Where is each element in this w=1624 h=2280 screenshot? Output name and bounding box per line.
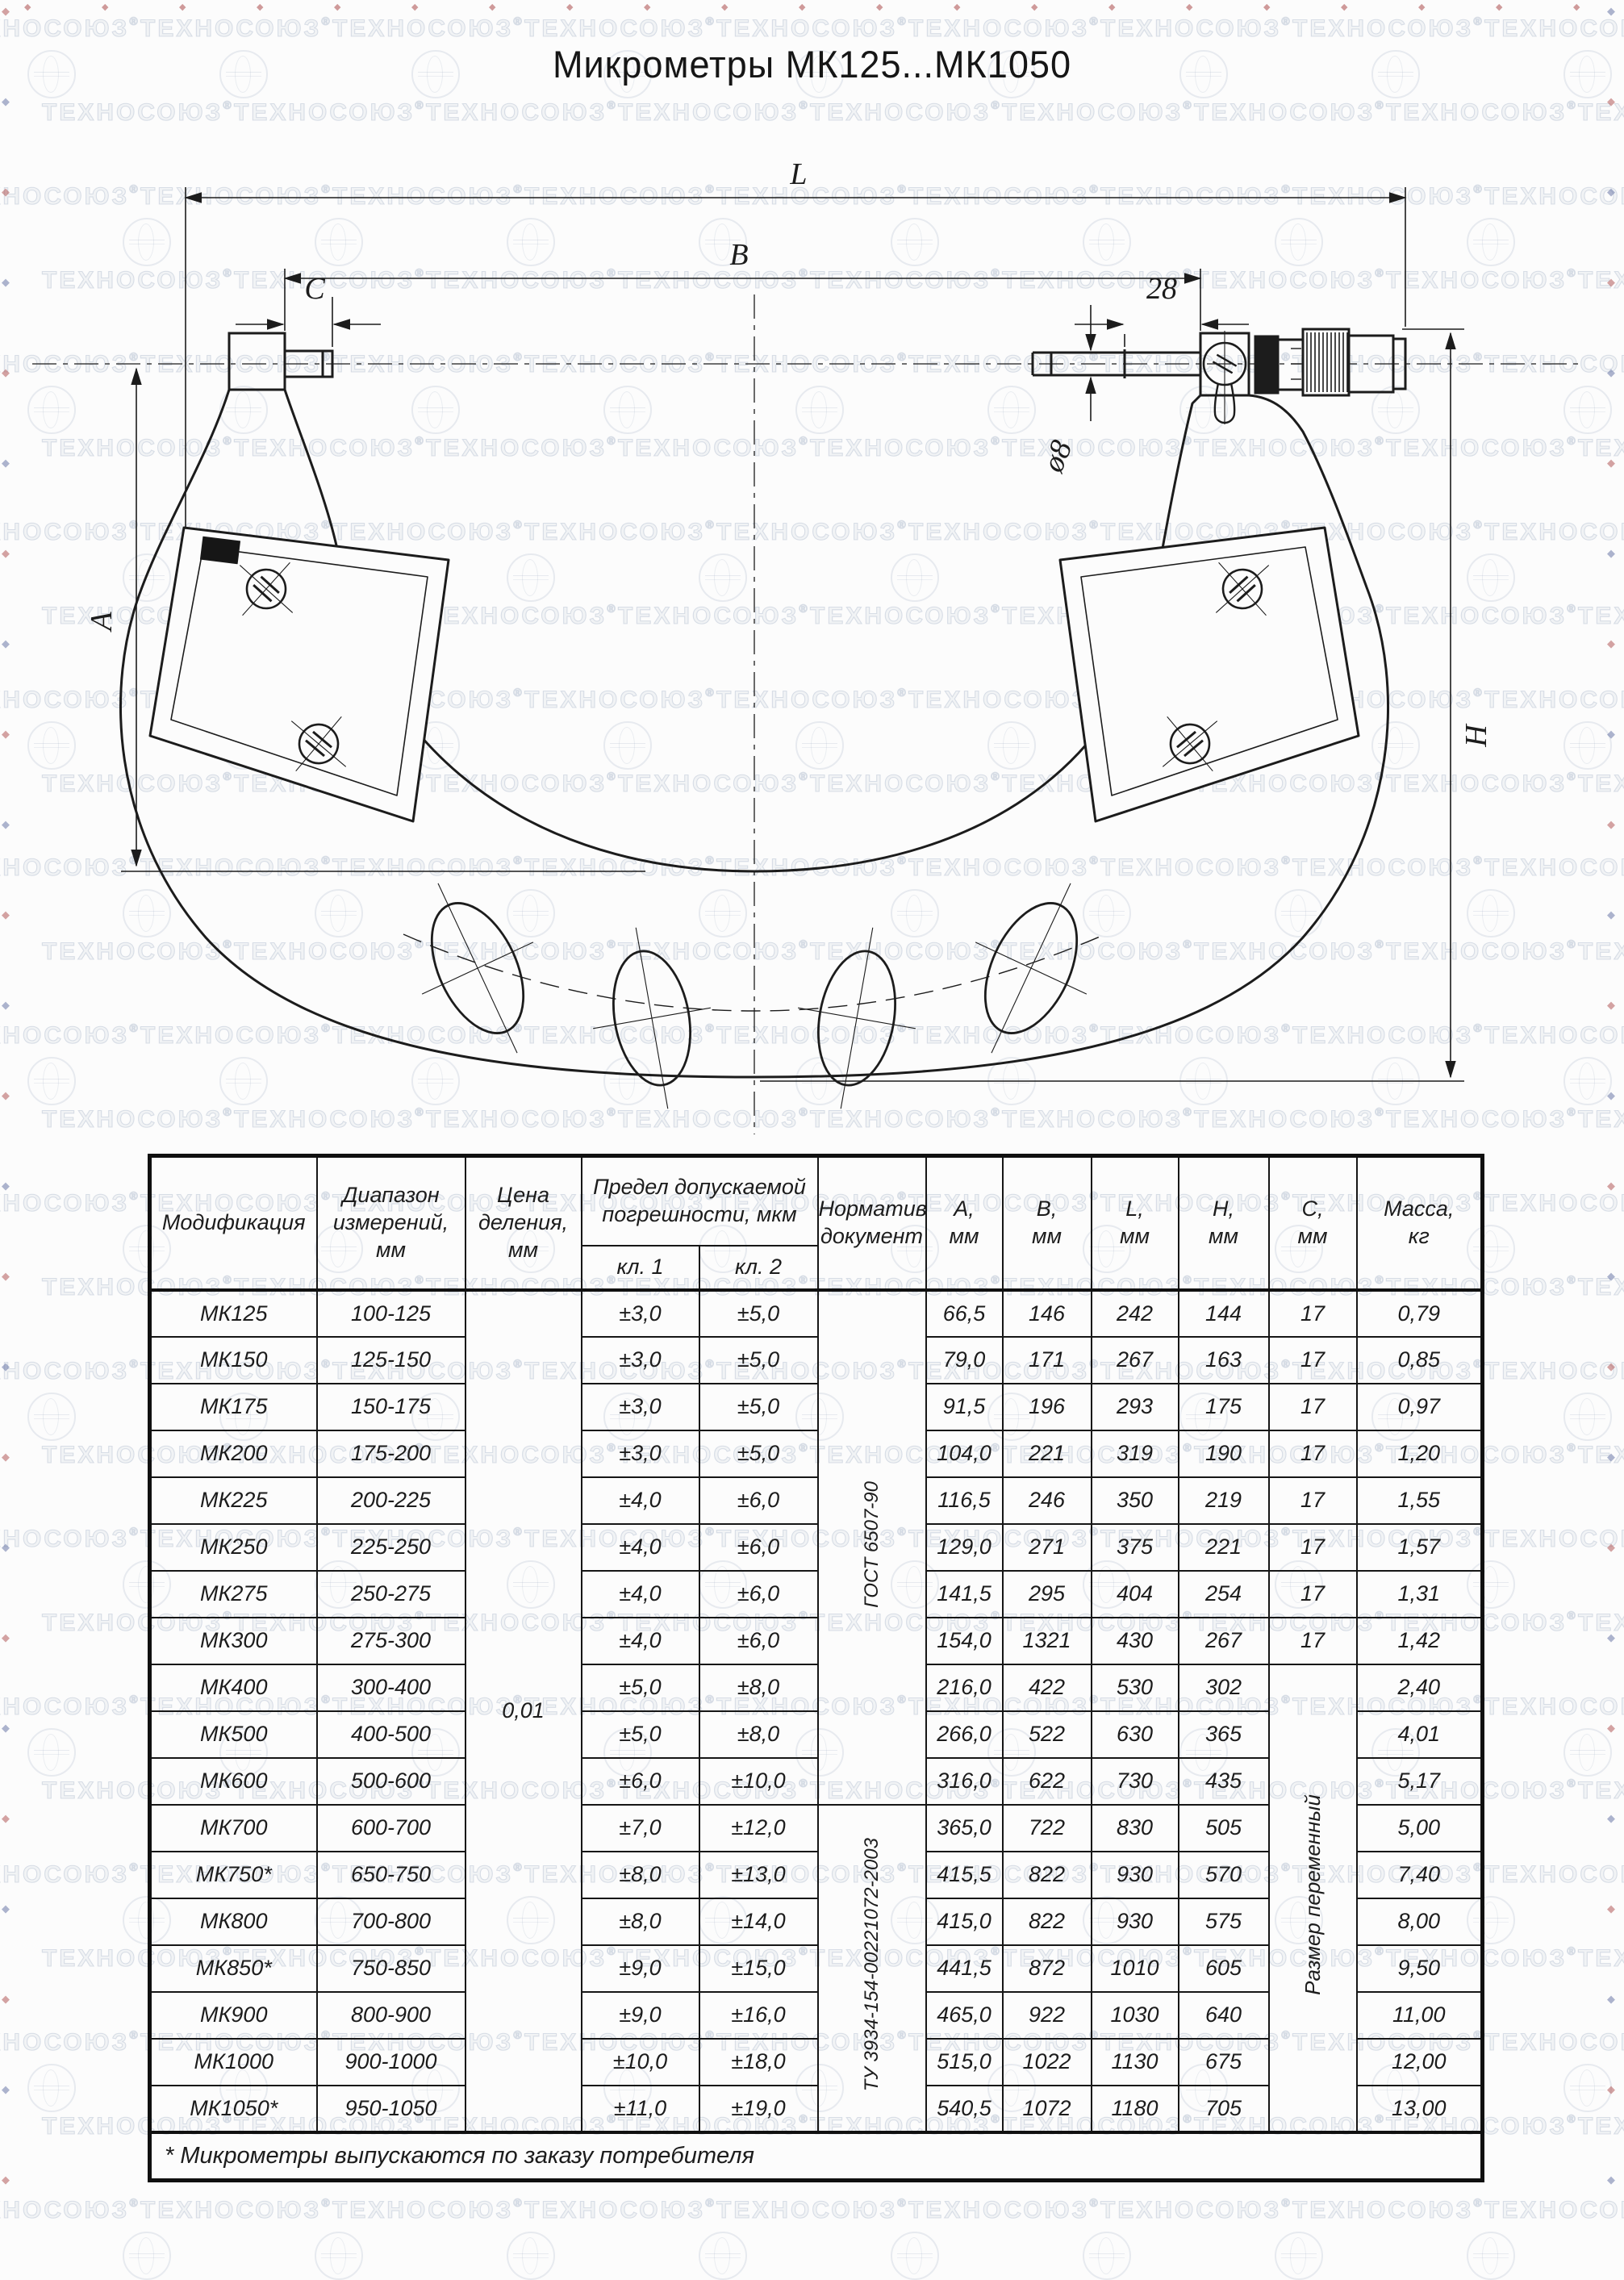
table-row: МК275250-275±4,0±6,0141,5295404254171,31: [150, 1571, 1483, 1618]
range-cell: 300-400: [317, 1664, 465, 1711]
adjusting-nut: [1255, 336, 1278, 393]
model-cell: МК225: [150, 1477, 317, 1524]
division-cell: 0,01: [465, 1290, 582, 2132]
c-cell: 17: [1269, 1477, 1357, 1524]
h-cell: 254: [1179, 1571, 1269, 1618]
dim-label-28: 28: [1146, 272, 1177, 306]
l-cell: 350: [1092, 1477, 1179, 1524]
header-mass: Масса, кг: [1357, 1156, 1483, 1291]
dim-label-d8: ø8: [1036, 436, 1079, 478]
class1-cell: ±3,0: [582, 1384, 699, 1430]
graduated-sleeve: [1278, 340, 1303, 390]
class1-cell: ±3,0: [582, 1290, 699, 1337]
range-cell: 250-275: [317, 1571, 465, 1618]
class2-cell: ±6,0: [699, 1571, 818, 1618]
mass-cell: 0,79: [1357, 1290, 1483, 1337]
h-cell: 575: [1179, 1898, 1269, 1945]
range-cell: 800-900: [317, 1992, 465, 2039]
l-cell: 1010: [1092, 1945, 1179, 1992]
l-cell: 830: [1092, 1805, 1179, 1852]
l-cell: 930: [1092, 1852, 1179, 1898]
l-cell: 1180: [1092, 2086, 1179, 2132]
b-cell: 822: [1003, 1852, 1092, 1898]
mass-cell: 1,31: [1357, 1571, 1483, 1618]
mass-cell: 2,40: [1357, 1664, 1483, 1711]
h-cell: 175: [1179, 1384, 1269, 1430]
mass-cell: 0,85: [1357, 1337, 1483, 1384]
class1-cell: ±11,0: [582, 2086, 699, 2132]
header-col-a: А, мм: [926, 1156, 1003, 1291]
class2-cell: ±6,0: [699, 1618, 818, 1664]
class2-cell: ±14,0: [699, 1898, 818, 1945]
c-cell: 17: [1269, 1290, 1357, 1337]
class2-cell: ±5,0: [699, 1384, 818, 1430]
table-row: МК125100-1250,01±3,0±5,0ГОСТ 6507-9066,5…: [150, 1290, 1483, 1337]
class2-cell: ±5,0: [699, 1290, 818, 1337]
mass-cell: 1,20: [1357, 1430, 1483, 1477]
class2-cell: ±8,0: [699, 1711, 818, 1758]
model-cell: МК500: [150, 1711, 317, 1758]
a-cell: 415,0: [926, 1898, 1003, 1945]
header-error: Предел допускаемой погрешности, мкм: [582, 1156, 818, 1246]
c-cell: 17: [1269, 1430, 1357, 1477]
header-doc: Нормативный документ: [818, 1156, 926, 1291]
table-row: МК225200-225±4,0±6,0116,5246350219171,55: [150, 1477, 1483, 1524]
class1-cell: ±5,0: [582, 1711, 699, 1758]
b-cell: 1072: [1003, 2086, 1092, 2132]
doc-gost: ГОСТ 6507-90: [862, 1481, 882, 1608]
division-value: 0,01: [466, 1697, 581, 1725]
class1-cell: ±3,0: [582, 1430, 699, 1477]
h-cell: 190: [1179, 1430, 1269, 1477]
class2-cell: ±5,0: [699, 1337, 818, 1384]
b-cell: 246: [1003, 1477, 1092, 1524]
l-cell: 404: [1092, 1571, 1179, 1618]
header-class2: кл. 2: [699, 1246, 818, 1290]
range-cell: 600-700: [317, 1805, 465, 1852]
b-cell: 522: [1003, 1711, 1092, 1758]
l-cell: 293: [1092, 1384, 1179, 1430]
class2-cell: ±6,0: [699, 1477, 818, 1524]
h-cell: 605: [1179, 1945, 1269, 1992]
class2-cell: ±6,0: [699, 1524, 818, 1571]
l-cell: 1130: [1092, 2039, 1179, 2086]
l-cell: 930: [1092, 1898, 1179, 1945]
table-row: МК250225-250±4,0±6,0129,0271375221171,57: [150, 1524, 1483, 1571]
model-cell: МК900: [150, 1992, 317, 2039]
a-cell: 415,5: [926, 1852, 1003, 1898]
b-cell: 622: [1003, 1758, 1092, 1805]
h-cell: 435: [1179, 1758, 1269, 1805]
c-variable: Размер переменный: [1302, 1794, 1323, 1995]
b-cell: 922: [1003, 1992, 1092, 2039]
doc-tu: ТУ 3934-154-00221072-2003: [862, 1838, 882, 2091]
h-cell: 144: [1179, 1290, 1269, 1337]
model-cell: МК275: [150, 1571, 317, 1618]
range-cell: 125-150: [317, 1337, 465, 1384]
model-cell: МК750*: [150, 1852, 317, 1898]
h-cell: 505: [1179, 1805, 1269, 1852]
dim-label-h: H: [1459, 723, 1493, 748]
page-title: Микрометры МК125...МК1050: [32, 42, 1591, 86]
b-cell: 1022: [1003, 2039, 1092, 2086]
b-cell: 422: [1003, 1664, 1092, 1711]
l-cell: 530: [1092, 1664, 1179, 1711]
knurled-thimble: [1303, 329, 1349, 395]
h-cell: 163: [1179, 1337, 1269, 1384]
b-cell: 722: [1003, 1805, 1092, 1852]
mass-cell: 13,00: [1357, 2086, 1483, 2132]
range-cell: 200-225: [317, 1477, 465, 1524]
class2-cell: ±15,0: [699, 1945, 818, 1992]
b-cell: 171: [1003, 1337, 1092, 1384]
a-cell: 91,5: [926, 1384, 1003, 1430]
header-col-h: Н, мм: [1179, 1156, 1269, 1291]
range-cell: 700-800: [317, 1898, 465, 1945]
h-cell: 675: [1179, 2039, 1269, 2086]
header-class1: кл. 1: [582, 1246, 699, 1290]
brand-plate: [200, 537, 240, 563]
model-cell: МК250: [150, 1524, 317, 1571]
class1-cell: ±6,0: [582, 1758, 699, 1805]
b-cell: 822: [1003, 1898, 1092, 1945]
model-cell: МК700: [150, 1805, 317, 1852]
mass-cell: 5,00: [1357, 1805, 1483, 1852]
h-cell: 221: [1179, 1524, 1269, 1571]
a-cell: 141,5: [926, 1571, 1003, 1618]
model-cell: МК300: [150, 1618, 317, 1664]
a-cell: 104,0: [926, 1430, 1003, 1477]
range-cell: 900-1000: [317, 2039, 465, 2086]
class1-cell: ±4,0: [582, 1524, 699, 1571]
b-cell: 1321: [1003, 1618, 1092, 1664]
mass-cell: 1,55: [1357, 1477, 1483, 1524]
b-cell: 295: [1003, 1571, 1092, 1618]
catalog-page: Микрометры МК125...МК1050: [0, 0, 1624, 2250]
class2-cell: ±8,0: [699, 1664, 818, 1711]
a-cell: 316,0: [926, 1758, 1003, 1805]
a-cell: 515,0: [926, 2039, 1003, 2086]
range-cell: 175-200: [317, 1430, 465, 1477]
mass-cell: 11,00: [1357, 1992, 1483, 2039]
class1-cell: ±7,0: [582, 1805, 699, 1852]
range-cell: 400-500: [317, 1711, 465, 1758]
b-cell: 872: [1003, 1945, 1092, 1992]
mass-cell: 0,97: [1357, 1384, 1483, 1430]
class1-cell: ±9,0: [582, 1945, 699, 1992]
dim-label-b: B: [729, 238, 748, 272]
a-cell: 66,5: [926, 1290, 1003, 1337]
mass-cell: 12,00: [1357, 2039, 1483, 2086]
table-row: МК175150-175±3,0±5,091,5196293175170,97: [150, 1384, 1483, 1430]
a-cell: 154,0: [926, 1618, 1003, 1664]
header-col-l: L, мм: [1092, 1156, 1179, 1291]
table-row: МК300275-300±4,0±6,0154,01321430267171,4…: [150, 1618, 1483, 1664]
a-cell: 216,0: [926, 1664, 1003, 1711]
class2-cell: ±19,0: [699, 2086, 818, 2132]
header-col-c: С, мм: [1269, 1156, 1357, 1291]
a-cell: 116,5: [926, 1477, 1003, 1524]
range-cell: 950-1050: [317, 2086, 465, 2132]
model-cell: МК125: [150, 1290, 317, 1337]
b-cell: 221: [1003, 1430, 1092, 1477]
l-cell: 242: [1092, 1290, 1179, 1337]
class2-cell: ±16,0: [699, 1992, 818, 2039]
b-cell: 146: [1003, 1290, 1092, 1337]
c-variable-cell: Размер переменный: [1269, 1664, 1357, 2132]
mass-cell: 7,40: [1357, 1852, 1483, 1898]
h-cell: 705: [1179, 2086, 1269, 2132]
a-cell: 79,0: [926, 1337, 1003, 1384]
micrometer-drawing: L B C 28 ø8 A H: [0, 137, 1624, 1146]
footnote-row: * Микрометры выпускаются по заказу потре…: [150, 2132, 1483, 2181]
class2-cell: ±10,0: [699, 1758, 818, 1805]
mass-cell: 1,57: [1357, 1524, 1483, 1571]
class1-cell: ±4,0: [582, 1618, 699, 1664]
class1-cell: ±4,0: [582, 1571, 699, 1618]
l-cell: 267: [1092, 1337, 1179, 1384]
c-cell: 17: [1269, 1384, 1357, 1430]
a-cell: 129,0: [926, 1524, 1003, 1571]
anvil-block: [229, 333, 332, 390]
range-cell: 650-750: [317, 1852, 465, 1898]
range-cell: 275-300: [317, 1618, 465, 1664]
mass-cell: 8,00: [1357, 1898, 1483, 1945]
class1-cell: ±9,0: [582, 1992, 699, 2039]
mass-cell: 5,17: [1357, 1758, 1483, 1805]
table-row: МК200175-200±3,0±5,0104,0221319190171,20: [150, 1430, 1483, 1477]
h-cell: 267: [1179, 1618, 1269, 1664]
model-cell: МК600: [150, 1758, 317, 1805]
a-cell: 465,0: [926, 1992, 1003, 2039]
l-cell: 630: [1092, 1711, 1179, 1758]
lock-lever: [1204, 331, 1246, 424]
mass-cell: 1,42: [1357, 1618, 1483, 1664]
a-cell: 540,5: [926, 2086, 1003, 2132]
spec-table: Модификация Диапазон измерений, мм Цена …: [148, 1154, 1484, 2182]
table-row: МК400300-400±5,0±8,0216,0422530302Размер…: [150, 1664, 1483, 1711]
dim-label-l: L: [789, 157, 807, 191]
footnote: * Микрометры выпускаются по заказу потре…: [150, 2132, 1483, 2181]
class1-cell: ±5,0: [582, 1664, 699, 1711]
dim-label-c: C: [304, 272, 325, 306]
mass-cell: 4,01: [1357, 1711, 1483, 1758]
h-cell: 219: [1179, 1477, 1269, 1524]
header-division: Цена деления, мм: [465, 1156, 582, 1291]
header-model: Модификация: [150, 1156, 317, 1291]
range-cell: 100-125: [317, 1290, 465, 1337]
range-cell: 225-250: [317, 1524, 465, 1571]
b-cell: 196: [1003, 1384, 1092, 1430]
model-cell: МК850*: [150, 1945, 317, 1992]
class2-cell: ±5,0: [699, 1430, 818, 1477]
header-range: Диапазон измерений, мм: [317, 1156, 465, 1291]
h-cell: 640: [1179, 1992, 1269, 2039]
l-cell: 1030: [1092, 1992, 1179, 2039]
c-cell: 17: [1269, 1524, 1357, 1571]
l-cell: 430: [1092, 1618, 1179, 1664]
class1-cell: ±4,0: [582, 1477, 699, 1524]
class2-cell: ±12,0: [699, 1805, 818, 1852]
c-cell: 17: [1269, 1337, 1357, 1384]
h-cell: 570: [1179, 1852, 1269, 1898]
class1-cell: ±10,0: [582, 2039, 699, 2086]
dim-label-a: A: [85, 612, 119, 633]
class2-cell: ±13,0: [699, 1852, 818, 1898]
range-cell: 150-175: [317, 1384, 465, 1430]
range-cell: 750-850: [317, 1945, 465, 1992]
range-cell: 500-600: [317, 1758, 465, 1805]
c-cell: 17: [1269, 1618, 1357, 1664]
model-cell: МК1050*: [150, 2086, 317, 2132]
h-cell: 365: [1179, 1711, 1269, 1758]
model-cell: МК800: [150, 1898, 317, 1945]
model-cell: МК400: [150, 1664, 317, 1711]
doc-tu-cell: ТУ 3934-154-00221072-2003: [818, 1805, 926, 2132]
a-cell: 441,5: [926, 1945, 1003, 1992]
l-cell: 730: [1092, 1758, 1179, 1805]
table-row: МК150125-150±3,0±5,079,0171267163170,85: [150, 1337, 1483, 1384]
header-col-b: В, мм: [1003, 1156, 1092, 1291]
a-cell: 365,0: [926, 1805, 1003, 1852]
model-cell: МК1000: [150, 2039, 317, 2086]
c-cell: 17: [1269, 1571, 1357, 1618]
l-cell: 319: [1092, 1430, 1179, 1477]
model-cell: МК150: [150, 1337, 317, 1384]
model-cell: МК175: [150, 1384, 317, 1430]
class1-cell: ±8,0: [582, 1898, 699, 1945]
class1-cell: ±8,0: [582, 1852, 699, 1898]
spindle-assembly: [1033, 329, 1405, 424]
model-cell: МК200: [150, 1430, 317, 1477]
doc-gost-cell: ГОСТ 6507-90: [818, 1290, 926, 1805]
h-cell: 302: [1179, 1664, 1269, 1711]
class1-cell: ±3,0: [582, 1337, 699, 1384]
a-cell: 266,0: [926, 1711, 1003, 1758]
b-cell: 271: [1003, 1524, 1092, 1571]
mass-cell: 9,50: [1357, 1945, 1483, 1992]
class2-cell: ±18,0: [699, 2039, 818, 2086]
l-cell: 375: [1092, 1524, 1179, 1571]
